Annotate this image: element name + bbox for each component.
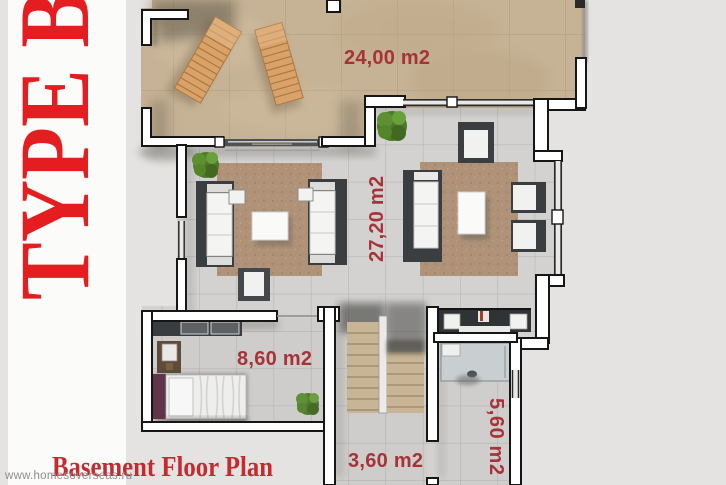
svg-text:www.homesoverseas.ru: www.homesoverseas.ru [4, 470, 132, 482]
svg-text:24,00 m2: 24,00 m2 [344, 47, 430, 69]
svg-text:TYPE B: TYPE B [0, 0, 110, 300]
svg-text:5,60 m2: 5,60 m2 [485, 398, 507, 475]
svg-text:8,60 m2: 8,60 m2 [237, 348, 312, 370]
svg-text:27,20 m2: 27,20 m2 [366, 176, 388, 262]
svg-text:3,60 m2: 3,60 m2 [348, 450, 423, 472]
